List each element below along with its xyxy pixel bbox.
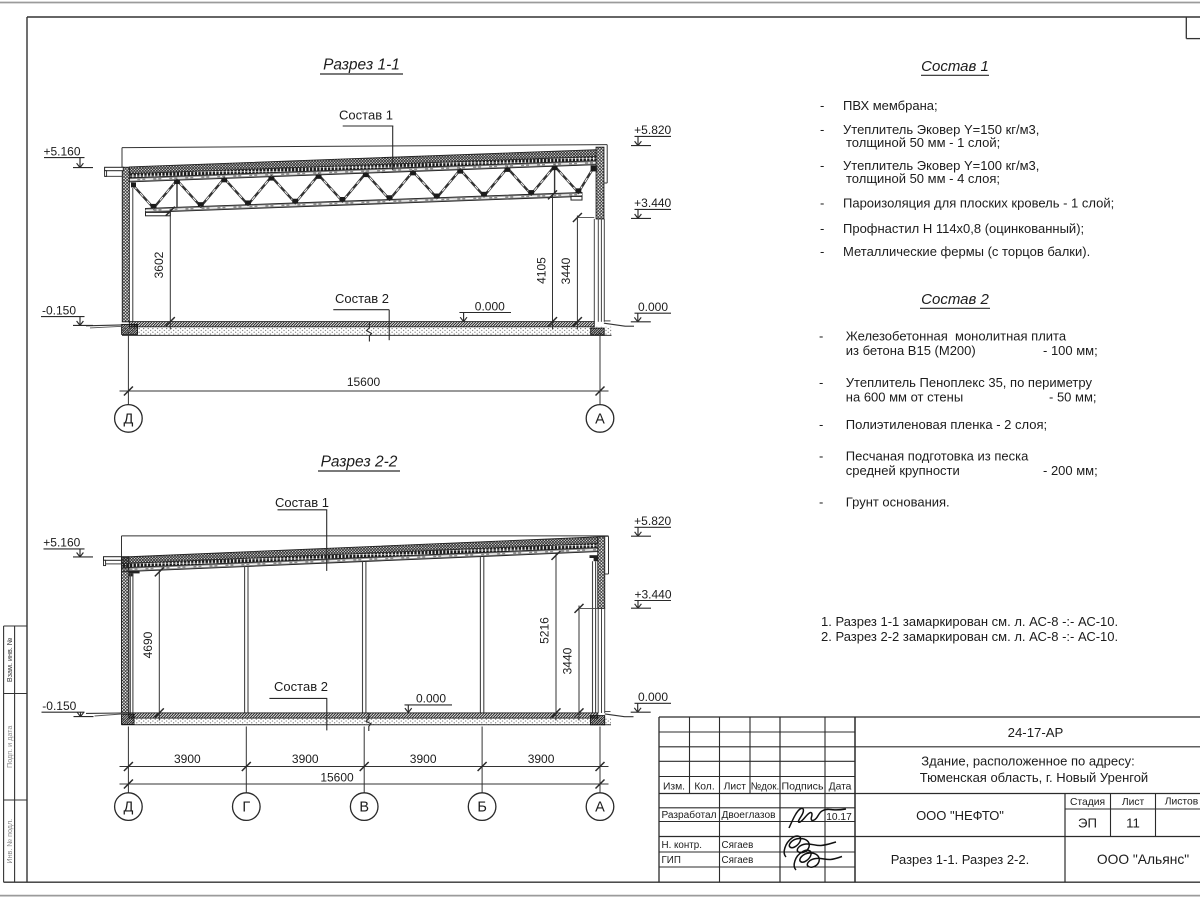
svg-text:ГИП: ГИП (662, 855, 681, 866)
svg-text:Н. контр.: Н. контр. (662, 840, 702, 851)
svg-text:Состав 1: Состав 1 (339, 108, 393, 123)
svg-text:+5.820: +5.820 (634, 123, 671, 137)
svg-text:Профнастил Н 114х0,8 (оцинкова: Профнастил Н 114х0,8 (оцинкованный); (843, 221, 1084, 236)
svg-text:Разработал: Разработал (662, 810, 717, 821)
svg-text:3602: 3602 (152, 251, 166, 278)
svg-text:Здание, расположенное по адрес: Здание, расположенное по адресу: (921, 754, 1134, 769)
svg-text:+5.160: +5.160 (43, 144, 80, 158)
svg-text:Дата: Дата (829, 781, 852, 792)
svg-text:Д: Д (123, 411, 133, 427)
svg-text:-: - (819, 449, 823, 464)
svg-text:3440: 3440 (561, 647, 575, 674)
svg-text:10.17: 10.17 (826, 812, 852, 823)
svg-text:15600: 15600 (320, 770, 354, 784)
svg-text:Песчаная подготовка из песка: Песчаная подготовка из песка (846, 449, 1029, 464)
svg-text:24-17-АР: 24-17-АР (1008, 725, 1064, 740)
svg-text:Стадия: Стадия (1070, 797, 1105, 808)
svg-text:3900: 3900 (292, 752, 319, 766)
svg-text:-0.150: -0.150 (42, 303, 76, 317)
svg-text:-: - (819, 329, 823, 344)
svg-text:- 200 мм;: - 200 мм; (1043, 463, 1098, 478)
svg-text:Состав 2: Состав 2 (335, 291, 389, 306)
svg-text:Подп. и дата: Подп. и дата (5, 726, 14, 768)
svg-text:ПВХ мембрана;: ПВХ мембрана; (843, 98, 938, 113)
svg-text:Грунт основания.: Грунт основания. (846, 495, 950, 510)
svg-text:+5.160: +5.160 (43, 536, 80, 550)
svg-text:3900: 3900 (528, 752, 555, 766)
svg-text:Пароизоляция для плоских крове: Пароизоляция для плоских кровель - 1 сло… (843, 196, 1114, 211)
svg-text:Взам. инв. №: Взам. инв. № (5, 637, 14, 682)
svg-text:0.000: 0.000 (638, 690, 668, 704)
svg-text:- 50 мм;: - 50 мм; (1049, 389, 1097, 404)
svg-text:Г: Г (242, 800, 250, 816)
svg-text:Полиэтиленовая пленка - 2 слоя: Полиэтиленовая пленка - 2 слоя; (846, 417, 1047, 432)
svg-text:Тюменская область, г. Новый Ур: Тюменская область, г. Новый Уренгой (920, 770, 1148, 785)
svg-text:Состав 1: Состав 1 (921, 58, 989, 75)
svg-text:0.000: 0.000 (416, 692, 446, 706)
svg-text:на 600 мм от стены: на 600 мм от стены (846, 389, 963, 404)
svg-text:+3.440: +3.440 (634, 587, 671, 601)
svg-text:Инв. № подл.: Инв. № подл. (5, 819, 14, 864)
svg-text:5216: 5216 (538, 617, 552, 644)
svg-text:3900: 3900 (174, 752, 201, 766)
svg-text:-: - (820, 221, 824, 236)
svg-text:15600: 15600 (347, 375, 381, 389)
svg-text:-: - (820, 196, 824, 211)
svg-text:Утеплитель Пеноплекс 35, по пе: Утеплитель Пеноплекс 35, по периметру (846, 375, 1093, 390)
svg-text:Лист: Лист (1122, 797, 1145, 808)
svg-text:Кол.: Кол. (694, 781, 714, 792)
svg-text:Листов: Листов (1165, 797, 1199, 808)
svg-text:-: - (820, 122, 824, 137)
svg-text:Состав 1: Состав 1 (275, 495, 329, 510)
svg-text:+3.440: +3.440 (634, 196, 671, 210)
svg-text:Металлические фермы (с торцов: Металлические фермы (с торцов балки). (843, 244, 1090, 259)
svg-text:ЭП: ЭП (1078, 816, 1097, 831)
svg-text:-0.150: -0.150 (42, 699, 76, 713)
svg-text:толщиной 50 мм - 1 слой;: толщиной 50 мм - 1 слой; (846, 135, 1000, 150)
svg-text:№док.: №док. (751, 781, 780, 792)
svg-text:Б: Б (477, 800, 487, 816)
svg-text:-: - (819, 417, 823, 432)
svg-text:2. Разрез 2-2 замаркирован см.: 2. Разрез 2-2 замаркирован см. л. АС-8 -… (821, 629, 1118, 644)
svg-text:4690: 4690 (141, 631, 155, 658)
svg-text:из бетона В15 (М200): из бетона В15 (М200) (846, 343, 976, 358)
svg-text:Разрез 1-1: Разрез 1-1 (323, 57, 400, 74)
svg-text:ООО "НЕФТО": ООО "НЕФТО" (916, 808, 1004, 823)
svg-text:В: В (359, 800, 369, 816)
svg-text:толщиной 50 мм - 4 слоя;: толщиной 50 мм - 4 слоя; (846, 171, 1000, 186)
svg-text:-: - (819, 375, 823, 390)
svg-text:Сягаев: Сягаев (722, 855, 754, 866)
svg-text:средней крупности: средней крупности (846, 463, 960, 478)
svg-text:+5.820: +5.820 (634, 514, 671, 528)
svg-text:Изм.: Изм. (663, 781, 685, 792)
svg-text:11: 11 (1126, 816, 1140, 831)
svg-text:-: - (820, 244, 824, 259)
svg-text:Двоеглазов: Двоеглазов (722, 810, 776, 821)
svg-text:1. Разрез 1-1 замаркирован см.: 1. Разрез 1-1 замаркирован см. л. АС-8 -… (821, 614, 1118, 629)
svg-text:0.000: 0.000 (475, 299, 505, 313)
svg-text:Состав 2: Состав 2 (274, 679, 328, 694)
svg-text:-: - (819, 495, 823, 510)
svg-text:А: А (595, 411, 605, 427)
svg-text:Железобетонная монолитная пли: Железобетонная монолитная плита (846, 329, 1067, 344)
svg-text:А: А (595, 800, 605, 816)
svg-text:ООО "Альянс": ООО "Альянс" (1097, 852, 1189, 867)
svg-text:Лист: Лист (724, 781, 747, 792)
svg-text:3440: 3440 (559, 257, 573, 284)
svg-text:-: - (820, 98, 824, 113)
svg-text:4105: 4105 (534, 257, 548, 284)
svg-text:Подпись: Подпись (782, 781, 824, 792)
svg-text:Сягаев: Сягаев (722, 840, 754, 851)
svg-text:0.000: 0.000 (638, 300, 668, 314)
svg-text:- 100 мм;: - 100 мм; (1043, 343, 1098, 358)
svg-text:Д: Д (123, 800, 133, 816)
svg-text:-: - (820, 158, 824, 173)
svg-text:Состав 2: Состав 2 (921, 291, 989, 308)
svg-text:3900: 3900 (410, 752, 437, 766)
svg-text:Разрез 1-1. Разрез 2-2.: Разрез 1-1. Разрез 2-2. (891, 852, 1029, 867)
svg-text:Разрез 2-2: Разрез 2-2 (321, 454, 398, 471)
